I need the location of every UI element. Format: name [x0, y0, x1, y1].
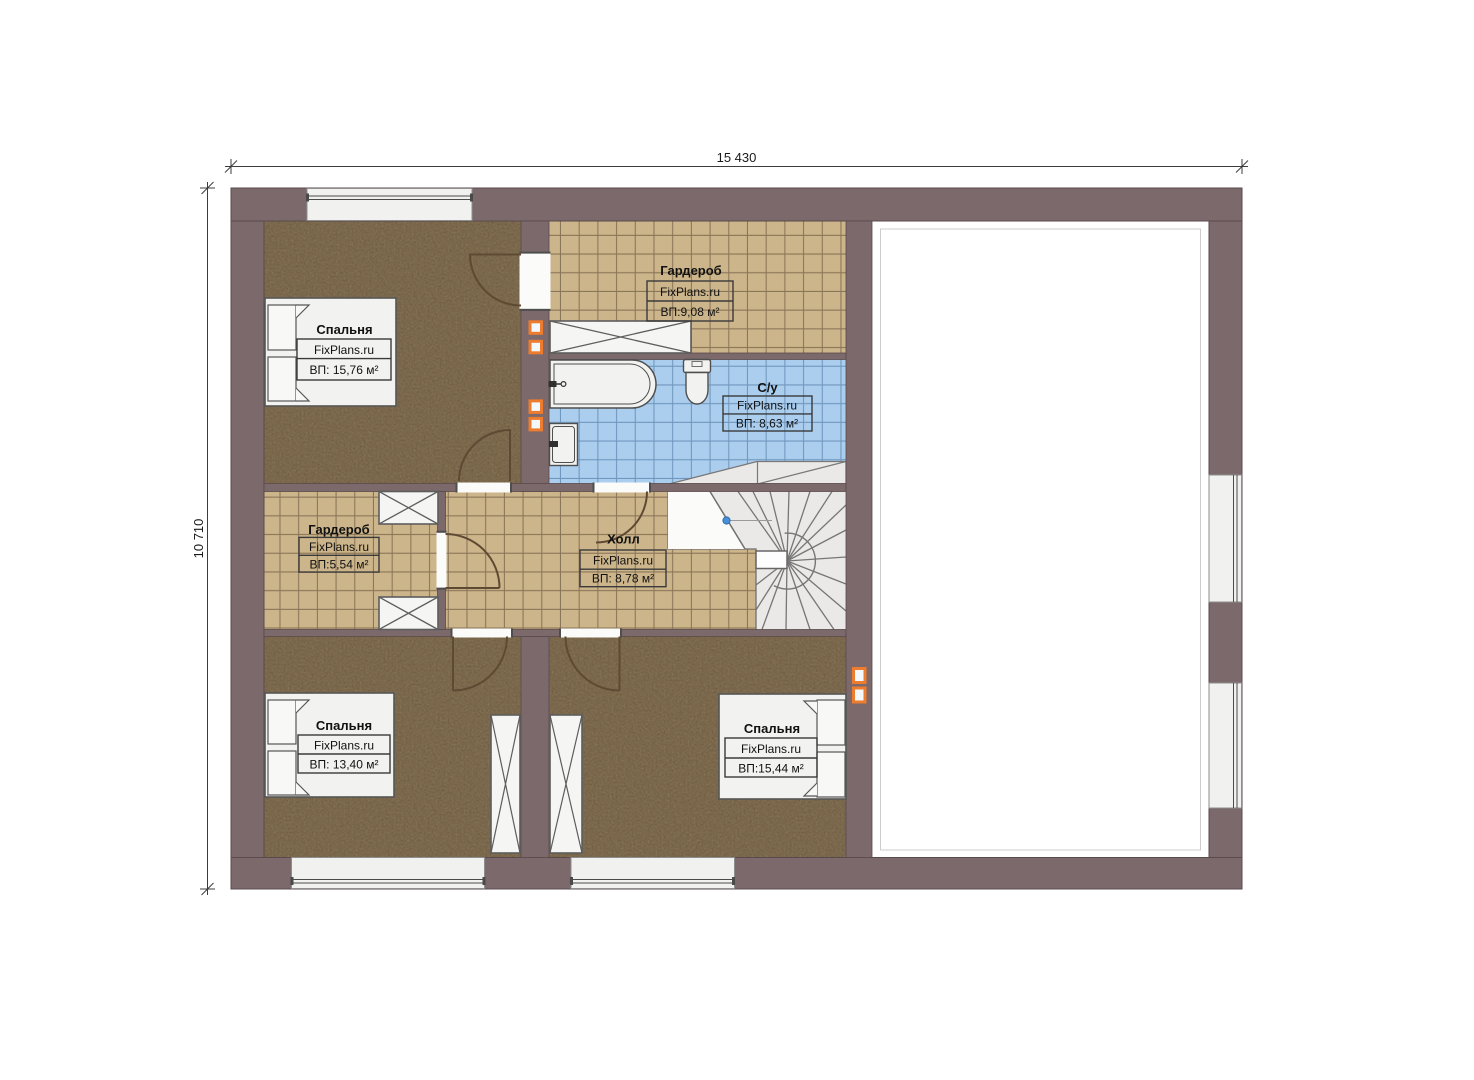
svg-text:ВП:15,44 м²: ВП:15,44 м²	[738, 762, 804, 776]
svg-text:FixPlans.ru: FixPlans.ru	[741, 742, 801, 756]
svg-text:Гардероб: Гардероб	[660, 263, 721, 278]
svg-text:10 710: 10 710	[191, 519, 206, 559]
svg-text:Спальня: Спальня	[744, 721, 800, 736]
svg-text:ВП: 8,78 м²: ВП: 8,78 м²	[592, 572, 654, 586]
svg-text:Спальня: Спальня	[316, 718, 372, 733]
svg-text:ВП: 15,76 м²: ВП: 15,76 м²	[310, 363, 379, 377]
svg-text:ВП: 13,40 м²: ВП: 13,40 м²	[310, 758, 379, 772]
svg-text:ВП: 8,63 м²: ВП: 8,63 м²	[736, 417, 798, 431]
svg-text:FixPlans.ru: FixPlans.ru	[314, 739, 374, 753]
svg-text:FixPlans.ru: FixPlans.ru	[660, 285, 720, 299]
svg-text:ВП:5,54 м²: ВП:5,54 м²	[310, 558, 369, 572]
svg-text:Гардероб: Гардероб	[308, 522, 369, 537]
svg-text:FixPlans.ru: FixPlans.ru	[593, 554, 653, 568]
svg-text:FixPlans.ru: FixPlans.ru	[737, 399, 797, 413]
svg-text:Холл: Холл	[607, 532, 640, 547]
svg-text:15 430: 15 430	[717, 150, 757, 165]
svg-text:С/у: С/у	[757, 380, 778, 395]
svg-text:FixPlans.ru: FixPlans.ru	[314, 343, 374, 357]
svg-text:Спальня: Спальня	[316, 322, 372, 337]
svg-text:FixPlans.ru: FixPlans.ru	[309, 540, 369, 554]
svg-text:ВП:9,08 м²: ВП:9,08 м²	[661, 305, 720, 319]
